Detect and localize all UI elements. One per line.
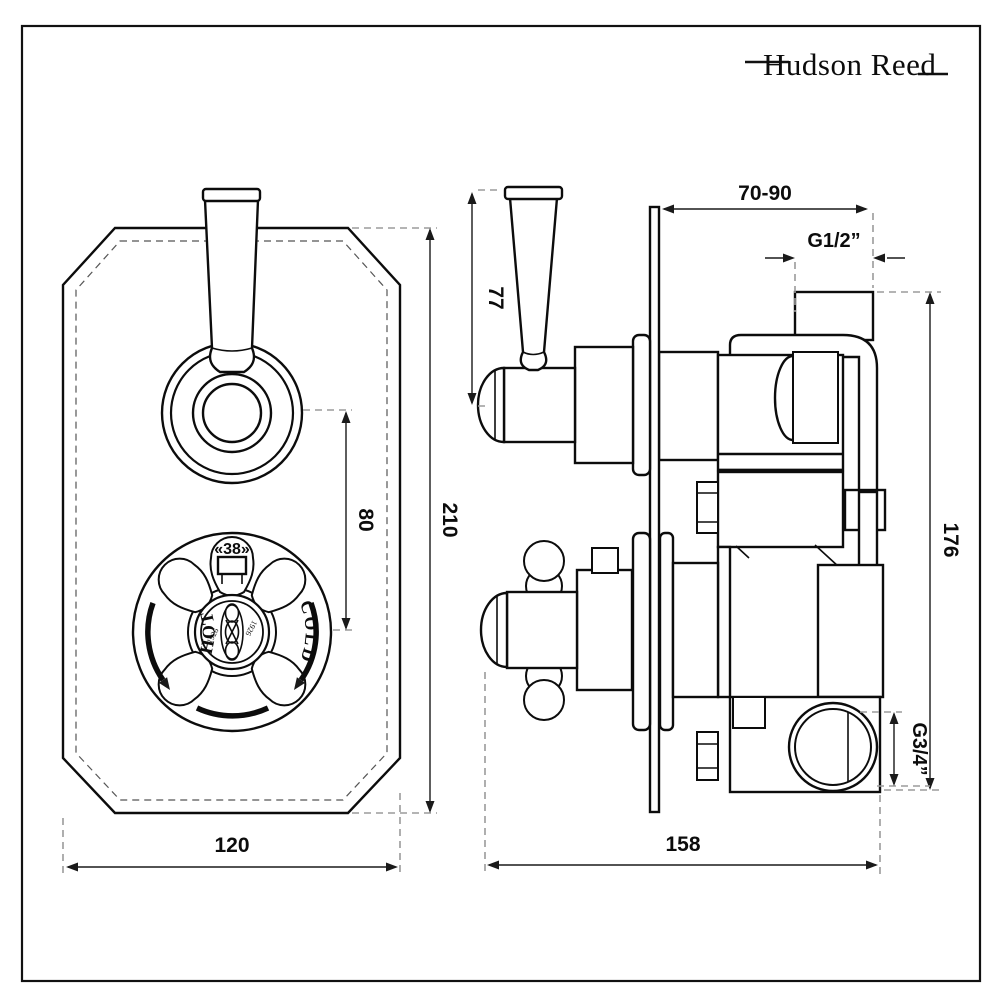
body-break-marks	[736, 545, 839, 567]
diverter-lever-side	[510, 198, 557, 370]
bottom-step-block	[733, 697, 765, 728]
dimension-body-height: 176	[877, 292, 962, 790]
bracket-arm-lower	[859, 492, 877, 568]
shower-valve-technical-drawing: Hudson Reed	[0, 0, 1000, 1000]
diverter-flange	[633, 335, 650, 475]
dim-top-outlet-thread: G1/2”	[807, 230, 860, 252]
inlet-hex-nut-lower	[697, 732, 718, 780]
thermo-stop-tab-side	[592, 548, 618, 573]
dim-plate-height: 210	[438, 502, 461, 537]
hot-label: HOT	[196, 608, 219, 655]
front-view-drawing: 1926 1926 «38» HOT COLD	[63, 189, 461, 877]
diverter-lever-handle	[205, 200, 258, 372]
thermo-flange	[633, 533, 650, 730]
diverter-lever-cap	[203, 189, 260, 201]
valve-body-side	[659, 292, 885, 792]
technical-drawing-page: Hudson Reed	[0, 0, 1000, 1000]
logo-text: Hudson Reed	[763, 47, 936, 82]
diverter-escutcheon-side	[575, 347, 633, 463]
thermostatic-control-side	[481, 533, 650, 730]
dim-total-depth: 158	[665, 833, 700, 856]
thermo-rotation-arc-left	[148, 603, 163, 680]
cross-spoke-bottom-outer	[524, 680, 564, 720]
thermostatic-control-front: 1926 1926 «38» HOT COLD	[133, 533, 331, 731]
thermo-hub	[507, 592, 577, 668]
brand-logo: Hudson Reed	[745, 47, 948, 82]
thermo-back-flange	[660, 533, 673, 730]
diverter-control-side	[478, 187, 650, 475]
body-column	[718, 547, 730, 697]
wall-plate	[650, 207, 659, 812]
dim-bottom-outlet-thread: G3/4”	[908, 722, 930, 775]
thermo-back-cylinder	[673, 563, 718, 697]
diverter-hub	[504, 368, 575, 442]
bottom-outlet-port	[789, 703, 877, 791]
dim-control-spacing: 80	[354, 508, 377, 531]
diverter-dome-cap	[478, 368, 504, 442]
dim-body-height: 176	[939, 522, 962, 557]
temp-38-label: «38»	[214, 541, 250, 558]
dim-wall-depth-range: 70-90	[738, 182, 792, 205]
dim-handle-height: 77	[484, 286, 507, 309]
diverter-lever-cap-side	[505, 187, 562, 199]
thermo-ring-arc-bottom	[197, 708, 268, 716]
cross-spoke-top-outer	[524, 541, 564, 581]
dimension-control-spacing: 80	[303, 410, 377, 630]
diverter-control-front	[162, 189, 302, 483]
svg-text:HOT: HOT	[196, 608, 219, 655]
dimension-plate-width: 120	[63, 793, 400, 877]
thermo-dome-cap	[481, 593, 507, 667]
cartridge-block	[793, 352, 838, 443]
inlet-hex-nut-upper	[697, 482, 718, 533]
temp-stop-tab	[218, 557, 246, 574]
body-mid-block	[718, 472, 843, 547]
side-view-drawing: 77 70-90 G1/2” 176	[468, 182, 963, 875]
thermo-escutcheon-side	[577, 570, 632, 690]
dim-plate-width: 120	[214, 834, 249, 857]
upper-valve-neck	[659, 352, 718, 460]
top-outlet-pipe	[795, 292, 873, 340]
body-lower-right-block	[818, 565, 883, 697]
